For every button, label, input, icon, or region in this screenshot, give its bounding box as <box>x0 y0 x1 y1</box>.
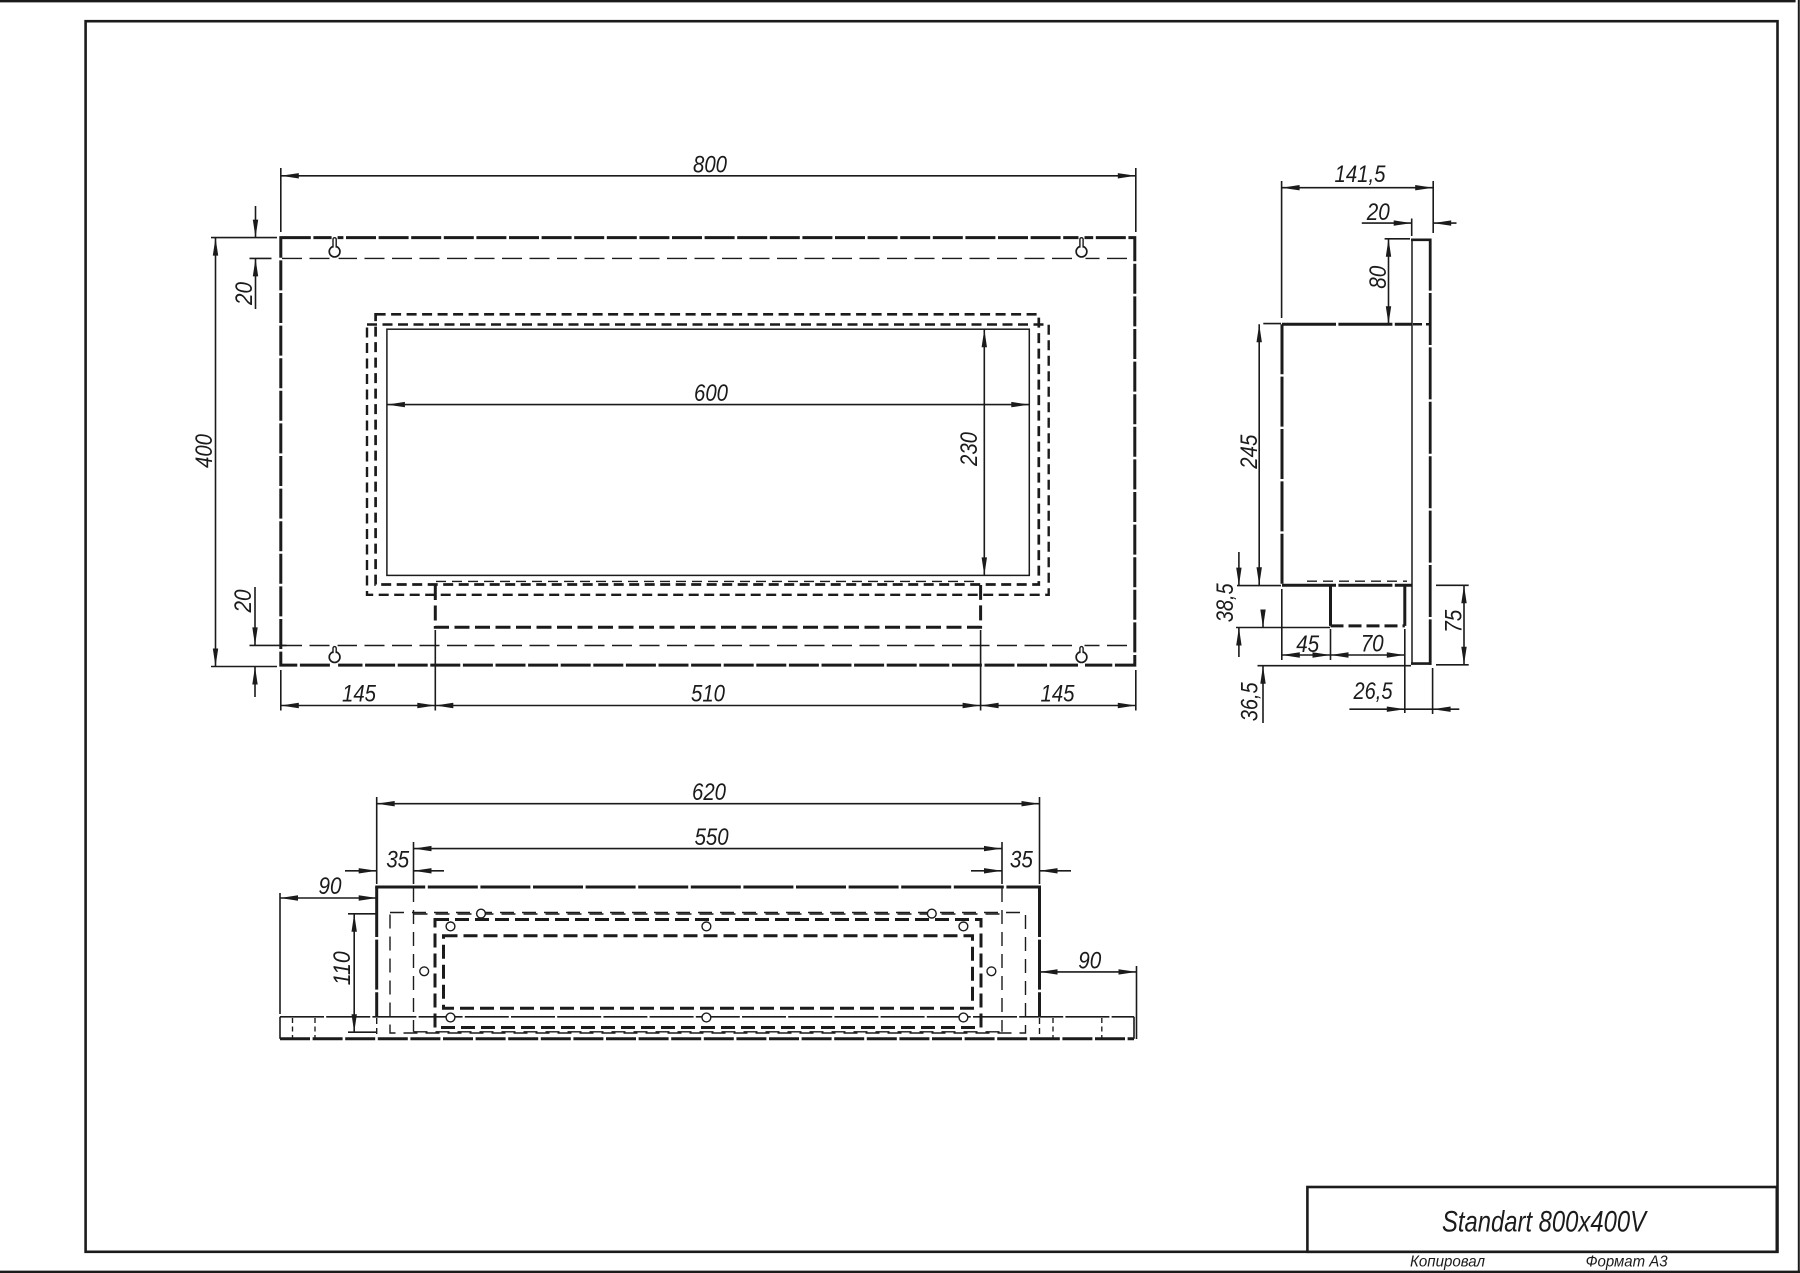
svg-text:510: 510 <box>691 681 726 708</box>
svg-text:620: 620 <box>692 779 727 806</box>
svg-text:75: 75 <box>1441 609 1468 633</box>
svg-text:20: 20 <box>231 281 258 305</box>
svg-text:Формат А3: Формат А3 <box>1586 1254 1668 1271</box>
svg-text:550: 550 <box>695 824 730 851</box>
svg-text:800: 800 <box>693 152 728 179</box>
svg-text:230: 230 <box>956 431 983 466</box>
svg-text:45: 45 <box>1296 631 1320 658</box>
svg-text:90: 90 <box>1078 947 1102 974</box>
svg-text:110: 110 <box>329 951 356 986</box>
svg-text:35: 35 <box>386 847 410 874</box>
svg-text:145: 145 <box>1041 681 1076 708</box>
svg-text:70: 70 <box>1361 631 1385 658</box>
svg-text:Standart 800x400V: Standart 800x400V <box>1442 1206 1648 1239</box>
svg-text:90: 90 <box>319 873 343 900</box>
svg-text:80: 80 <box>1365 265 1392 289</box>
svg-text:141,5: 141,5 <box>1335 161 1387 188</box>
svg-text:38,5: 38,5 <box>1212 583 1239 623</box>
svg-text:20: 20 <box>230 589 257 613</box>
svg-text:Копировал: Копировал <box>1410 1254 1485 1271</box>
svg-text:26,5: 26,5 <box>1353 678 1393 705</box>
svg-text:600: 600 <box>694 380 729 407</box>
svg-text:36,5: 36,5 <box>1236 682 1263 722</box>
svg-text:20: 20 <box>1366 199 1390 226</box>
svg-text:245: 245 <box>1236 434 1263 469</box>
svg-text:145: 145 <box>342 681 377 708</box>
svg-text:35: 35 <box>1010 847 1034 874</box>
svg-text:400: 400 <box>191 433 218 468</box>
